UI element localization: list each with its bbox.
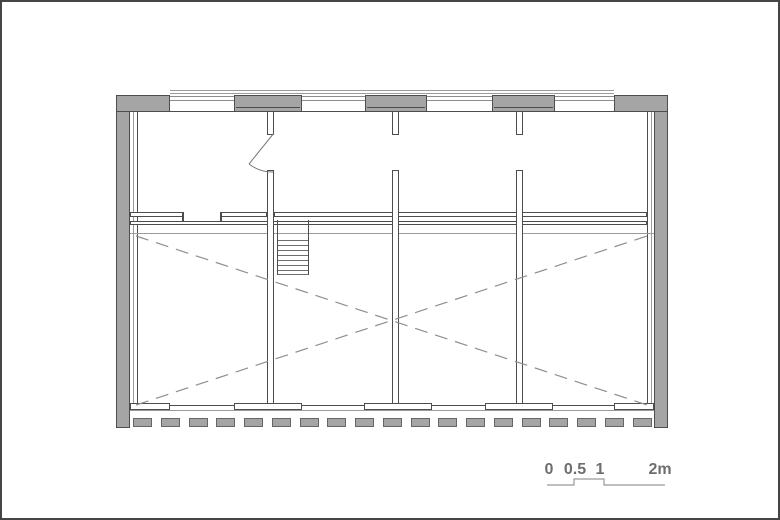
wall-dash bbox=[327, 418, 346, 427]
stair bbox=[277, 220, 309, 275]
room-south-wall-right-segment bbox=[220, 212, 267, 217]
left-wall-inner-line-outer bbox=[133, 112, 134, 406]
floor-plan-sheet: 0 0.5 1 2m bbox=[0, 0, 780, 520]
wall-dash bbox=[633, 418, 652, 427]
mezzanine-beam bbox=[130, 221, 647, 225]
bottom-wall-second-line bbox=[130, 410, 654, 411]
bottom-pier-left-corner bbox=[130, 403, 170, 410]
wall-dash bbox=[272, 418, 291, 427]
wall-dash bbox=[411, 418, 430, 427]
top-eaves-line-outer bbox=[170, 90, 614, 91]
stair-tread bbox=[278, 260, 308, 261]
wall-dash bbox=[189, 418, 208, 427]
scale-label-1: 1 bbox=[590, 461, 610, 479]
opening-jamb-right bbox=[220, 212, 222, 221]
wall-dash bbox=[300, 418, 319, 427]
mullion-stub-3 bbox=[516, 112, 523, 135]
stair-tread bbox=[278, 245, 308, 246]
partition-wall-1 bbox=[267, 170, 274, 406]
top-eaves-line-inner bbox=[170, 93, 614, 94]
mullion-stub-1 bbox=[267, 112, 274, 135]
bottom-dashed-wall bbox=[133, 418, 652, 427]
partition-wall-3 bbox=[516, 170, 523, 406]
partition-wall-2 bbox=[392, 170, 399, 406]
top-right-corner-wall-block bbox=[614, 95, 668, 112]
wall-dash bbox=[605, 418, 624, 427]
stair-tread bbox=[278, 255, 308, 256]
left-exterior-wall bbox=[116, 95, 130, 428]
scale-label-0-5: 0.5 bbox=[560, 461, 590, 479]
window-pier-1 bbox=[234, 95, 302, 112]
wall-dash bbox=[549, 418, 568, 427]
wall-dash bbox=[216, 418, 235, 427]
right-wall-inner-line-outer bbox=[651, 112, 652, 406]
window-sill-line bbox=[367, 107, 425, 108]
scale-bar-line bbox=[547, 479, 665, 485]
stair-tread bbox=[278, 274, 308, 275]
window-pier-2 bbox=[365, 95, 427, 112]
window-pier-3 bbox=[492, 95, 555, 112]
stair-tread bbox=[278, 270, 308, 271]
wall-dash bbox=[161, 418, 180, 427]
wall-dash bbox=[577, 418, 596, 427]
scale-label-2m: 2m bbox=[643, 461, 677, 479]
stair-tread bbox=[278, 250, 308, 251]
right-exterior-wall bbox=[654, 95, 668, 428]
wall-dash bbox=[466, 418, 485, 427]
bottom-pier-2 bbox=[364, 403, 432, 410]
door-swing bbox=[249, 133, 274, 172]
top-left-corner-wall-block bbox=[116, 95, 170, 112]
room-south-wall-left-segment bbox=[130, 212, 184, 217]
wall-dash bbox=[244, 418, 263, 427]
opening-jamb-left bbox=[182, 212, 184, 221]
scale-label-0: 0 bbox=[539, 461, 559, 479]
wall-dash bbox=[383, 418, 402, 427]
left-wall-inner-line-inner bbox=[137, 112, 138, 406]
bottom-pier-right-corner bbox=[614, 403, 654, 410]
wall-dash bbox=[133, 418, 152, 427]
window-sill-line bbox=[236, 107, 300, 108]
window-sill-line bbox=[494, 107, 553, 108]
wall-dash bbox=[438, 418, 457, 427]
mullion-stub-2 bbox=[392, 112, 399, 135]
gallery-edge-wall bbox=[274, 212, 647, 217]
stair-tread bbox=[278, 265, 308, 266]
right-wall-inner-line-inner bbox=[647, 112, 648, 406]
bottom-pier-3 bbox=[485, 403, 553, 410]
wall-dash bbox=[494, 418, 513, 427]
wall-dash bbox=[355, 418, 374, 427]
stair-tread bbox=[278, 240, 308, 241]
wall-dash bbox=[522, 418, 541, 427]
bottom-pier-1 bbox=[234, 403, 302, 410]
